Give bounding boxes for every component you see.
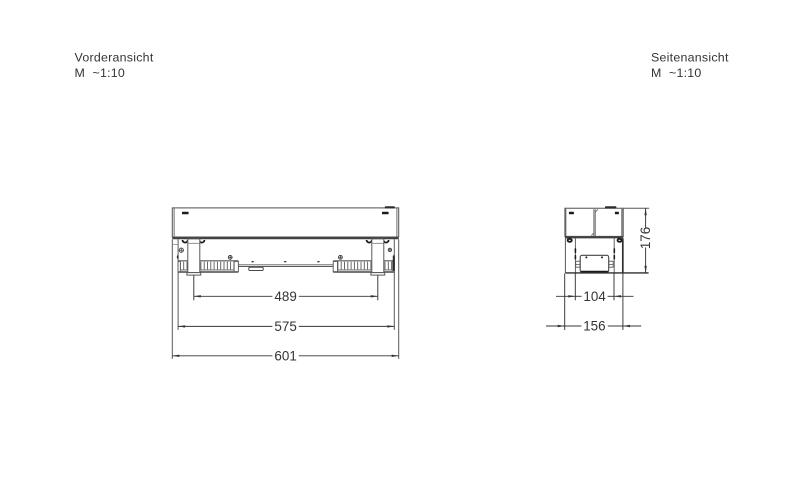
svg-text:156: 156 (583, 319, 605, 334)
svg-text:M ~1:10: M ~1:10 (651, 66, 702, 80)
svg-text:Seitenansicht: Seitenansicht (651, 51, 729, 65)
svg-text:M ~1:10: M ~1:10 (75, 66, 126, 80)
svg-text:176: 176 (638, 227, 653, 249)
svg-text:Vorderansicht: Vorderansicht (75, 51, 154, 65)
svg-text:104: 104 (583, 289, 606, 304)
svg-text:575: 575 (274, 319, 296, 334)
svg-text:601: 601 (274, 348, 296, 363)
svg-text:489: 489 (274, 289, 296, 304)
